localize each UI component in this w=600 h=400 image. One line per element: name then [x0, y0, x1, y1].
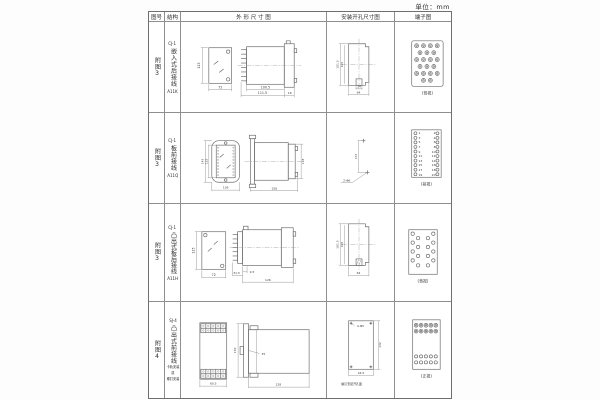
dim-label: 111.5	[258, 91, 267, 95]
spec-table: 图号 结构 外 形 尺 寸 图 安装开孔尺寸图 端子图 附图3 CJ-1 嵌入式…	[148, 11, 452, 399]
terminal-drawing-row3: (背视)	[394, 203, 451, 301]
dim-label: 72	[212, 273, 216, 277]
dim-label: 105	[340, 242, 344, 248]
install-caption: 螺钉安装开孔图	[341, 381, 362, 386]
structure-desc: 板前接线	[170, 145, 176, 171]
model-label: CJ-1	[169, 41, 177, 46]
mounting-note-1: 卡轨安装	[166, 366, 179, 369]
install-svg-row4: 4-Φ5 132 44.5 螺钉安装开孔图	[327, 302, 394, 398]
dim-label: 115	[197, 62, 201, 68]
side-view: 100.5 111.5 16	[238, 41, 302, 97]
figure-no-row2: 附图3	[149, 112, 164, 203]
dim-label: 72	[218, 85, 222, 89]
outline-drawing-row2: 145 125 105 156 118	[180, 112, 326, 203]
outline-drawing-row4: 60.5 35 130 128	[180, 301, 326, 398]
dim-label: 105	[223, 186, 229, 190]
dim-label: 44.5	[358, 371, 365, 375]
dim-label: 126	[265, 278, 271, 282]
install-drawing-row2: 133 2-Φ6	[326, 112, 394, 203]
view-label: (背视)	[422, 91, 433, 96]
dim-label: 156	[272, 186, 278, 190]
terminal-numbers-right: 2 4 6 8 10 12 14 16 18 20	[427, 131, 436, 177]
outline-drawing-row3: 115 72 31.5 9.5 126	[180, 203, 326, 301]
outline-svg-row3: 115 72 31.5 9.5 126	[181, 204, 326, 301]
outline-svg-row1: 115 72 100.5 111.5	[181, 22, 326, 112]
header-structure: 结构	[164, 12, 180, 21]
front-view: 115 72	[192, 232, 226, 279]
header-install-holes: 安装开孔尺寸图	[326, 12, 394, 21]
view-label: (前视)	[421, 182, 432, 187]
mounting-note-2: 或	[171, 372, 174, 375]
structure-desc: 嵌入式后接线	[170, 48, 176, 87]
front-view: 115 72	[197, 48, 231, 92]
code-label: A11K	[167, 89, 177, 94]
structure-desc: 凸出式前接线	[170, 325, 176, 364]
terminal-svg-row3: (背视)	[395, 204, 451, 301]
dim-label: 100.5	[261, 85, 270, 89]
dim-label: 128	[275, 383, 281, 387]
install-svg-row2: 133 2-Φ6	[327, 113, 394, 203]
dim-label: 115	[192, 247, 196, 253]
side-view: 35 130 128	[233, 324, 309, 388]
dim-label: 118	[301, 159, 305, 165]
dim-label: 14	[357, 85, 361, 89]
terminal-drawing-row1: (背视)	[394, 21, 451, 112]
install-drawing-row1: 101.5 105 14 64	[326, 21, 394, 112]
mounting-note-3: 螺钉安装	[166, 378, 179, 381]
hole-label: 2-Φ6	[343, 179, 350, 183]
dim-label: 31.5	[233, 271, 240, 275]
header-outline-dims: 外 形 尺 寸 图	[180, 12, 326, 21]
structure-row4: SJ-4 凸出式前接线 卡轨安装 或 螺钉安装	[164, 301, 180, 398]
dim-label: 125	[204, 159, 208, 165]
dim-label: 64	[357, 90, 361, 94]
install-svg-row1: 101.5 105 14 64	[327, 22, 394, 112]
figure-no-row3: 附图3	[149, 203, 164, 301]
dim-label: 132	[378, 342, 382, 348]
holes-label: 4-Φ5	[357, 324, 364, 328]
dim-label: 130	[233, 348, 237, 354]
figure-no-text: 附图3	[154, 242, 160, 263]
dim-label: 16	[288, 91, 292, 95]
dim-label: 9.5	[250, 270, 255, 274]
terminal-svg-row4: (正视)	[395, 302, 451, 398]
install-drawing-row3: 101.5 105 64	[326, 203, 394, 301]
model-label: CJ-1	[169, 138, 177, 143]
install-drawing-row4: 4-Φ5 132 44.5 螺钉安装开孔图	[326, 301, 394, 398]
outline-svg-row4: 60.5 35 130 128	[181, 302, 326, 398]
terminal-drawing-row2: (前视) 1 3 5 7 9 11 13 15 17 19 2 4 6 8 10…	[394, 112, 451, 203]
header-terminal-diagram: 端子图	[394, 12, 451, 21]
model-label: SJ-4	[169, 318, 177, 323]
figure-no-text: 附图3	[154, 57, 160, 78]
unit-label: 单位：mm	[415, 1, 450, 11]
structure-row3: CJ-1 凸出式板后接线 A11H	[164, 203, 180, 301]
view-label: (正视)	[421, 374, 432, 379]
dim-label: 60.5	[210, 382, 217, 386]
dim-label: 35	[262, 352, 266, 356]
front-view: 60.5	[200, 323, 227, 387]
side-view: 156 118	[245, 135, 306, 191]
dim-label: 105	[340, 62, 344, 68]
outline-svg-row2: 145 125 105 156 118	[181, 113, 326, 203]
side-view: 31.5 9.5 126	[230, 226, 300, 283]
outline-drawing-row1: 115 72 100.5 111.5	[180, 21, 326, 112]
terminal-svg-row1: (背视)	[395, 22, 451, 112]
dim-label: 64	[357, 271, 361, 275]
dim-label: 133	[354, 154, 358, 160]
terminal-drawing-row4: (正视)	[394, 301, 451, 398]
figure-no-row1: 附图3	[149, 21, 164, 112]
structure-row1: CJ-1 嵌入式后接线 A11K	[164, 21, 180, 112]
header-figure-no: 图号	[149, 12, 164, 21]
view-label: (背视)	[418, 279, 429, 284]
code-label: A11H	[167, 276, 178, 281]
figure-no-row4: 附图4	[149, 301, 164, 398]
install-svg-row3: 101.5 105 64	[327, 204, 394, 301]
model-label: CJ-1	[169, 225, 177, 230]
structure-desc: 凸出式板后接线	[170, 232, 176, 274]
figure-no-text: 附图3	[154, 148, 160, 169]
structure-row2: CJ-1 板前接线 A11Q	[164, 112, 180, 203]
code-label: A11Q	[167, 173, 178, 178]
front-view: 145 125 105	[200, 141, 239, 191]
figure-no-text: 附图4	[154, 340, 160, 361]
